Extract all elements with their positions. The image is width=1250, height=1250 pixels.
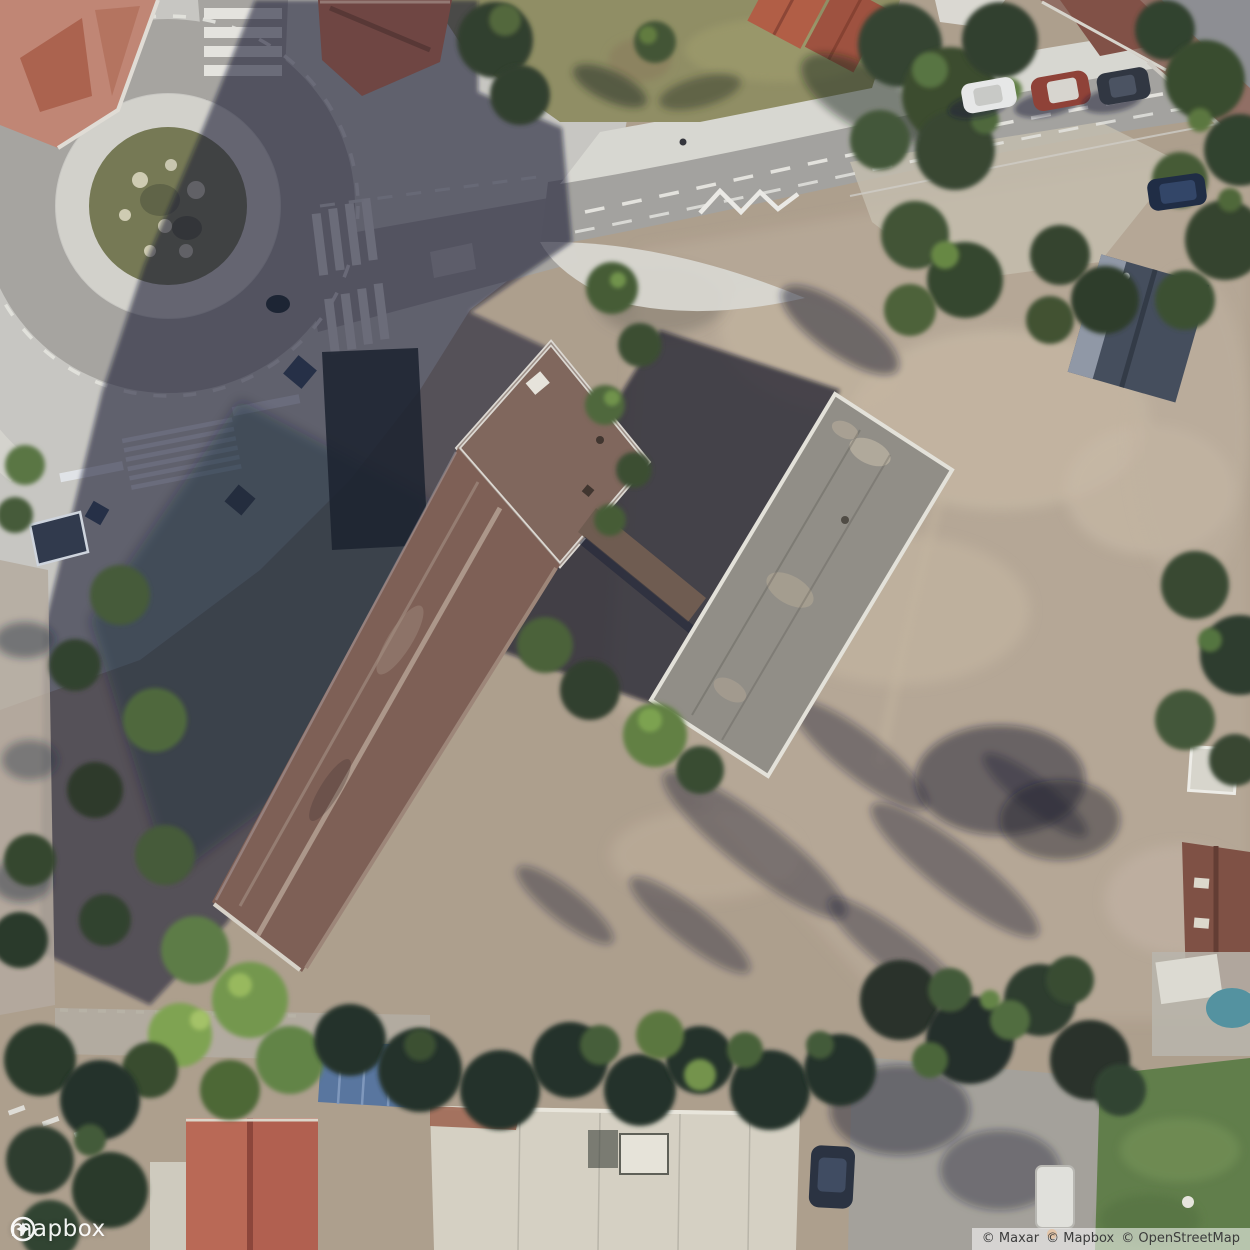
- attribution-bar: © Maxar © Mapbox © OpenStreetMap: [972, 1228, 1250, 1250]
- mapbox-logo[interactable]: mapbox: [10, 1216, 106, 1242]
- satellite-map-canvas[interactable]: mapbox © Maxar © Mapbox © OpenStreetMap: [0, 0, 1250, 1250]
- mapbox-logo-icon: [10, 1216, 36, 1242]
- haze-overlay: [0, 0, 1250, 1250]
- satellite-imagery: [0, 0, 1250, 1250]
- attribution-openstreetmap[interactable]: © OpenStreetMap: [1121, 1231, 1240, 1246]
- attribution-mapbox[interactable]: © Mapbox: [1046, 1231, 1114, 1246]
- attribution-maxar[interactable]: © Maxar: [982, 1231, 1039, 1246]
